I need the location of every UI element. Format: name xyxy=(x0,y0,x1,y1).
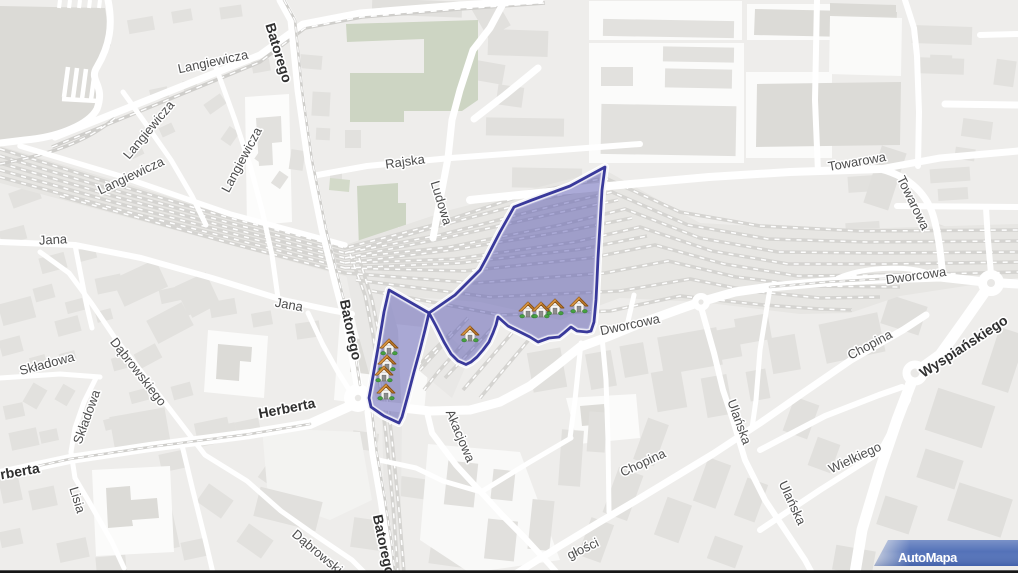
svg-text:AutoMapa: AutoMapa xyxy=(898,550,958,565)
svg-text:Jana: Jana xyxy=(38,231,68,247)
